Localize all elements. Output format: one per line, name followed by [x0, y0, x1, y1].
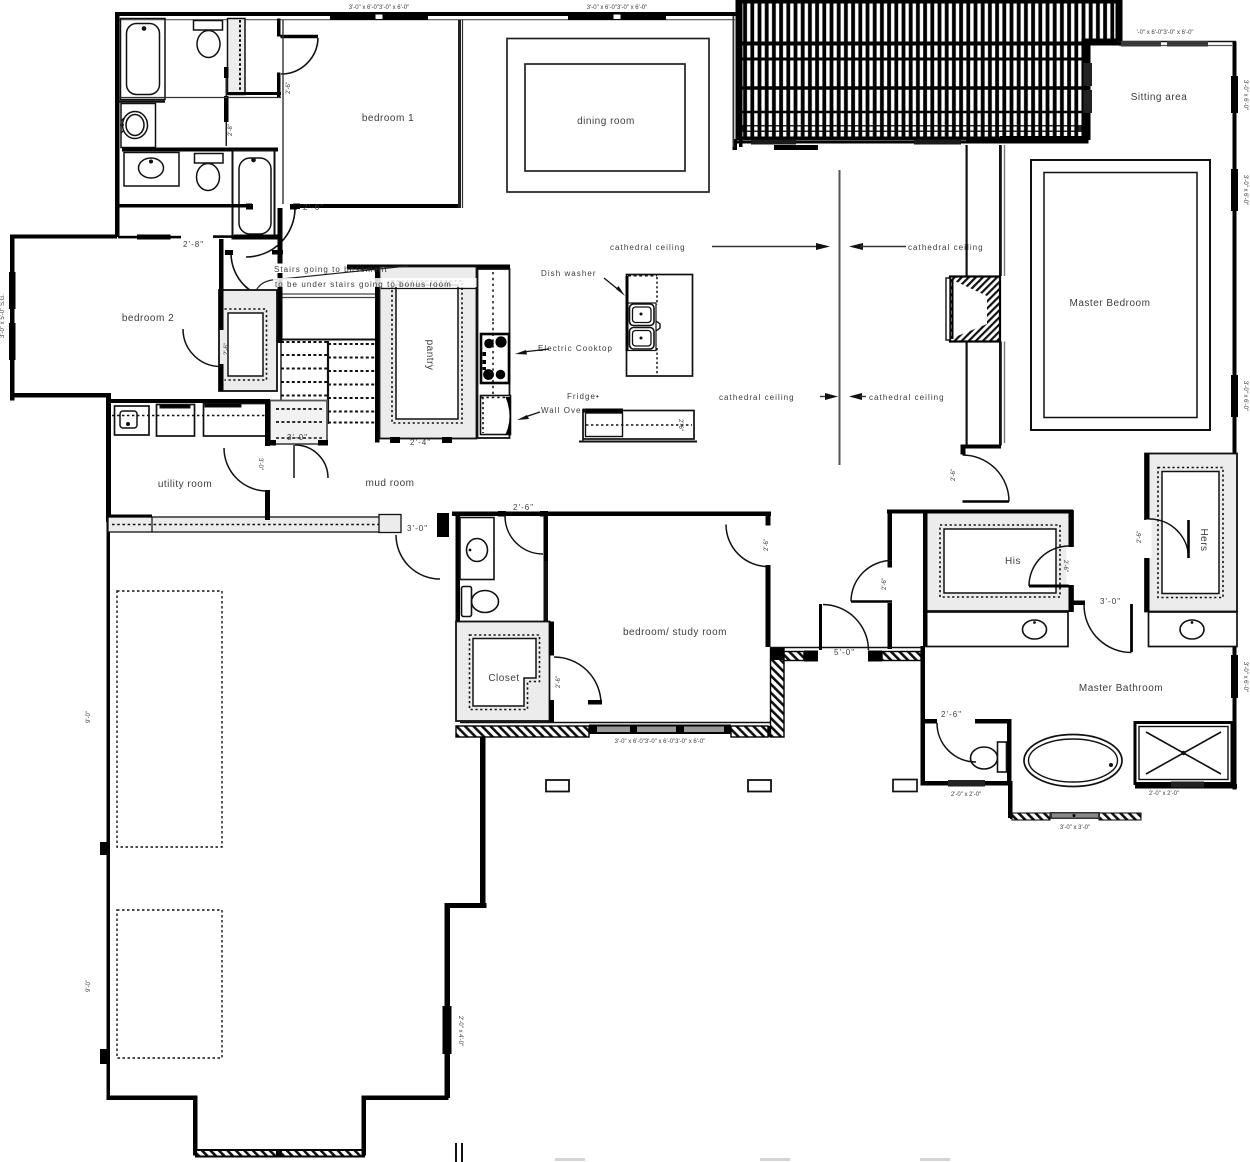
svg-text:3'-0": 3'-0" [257, 458, 263, 470]
svg-text:cathedral ceiling: cathedral ceiling [869, 393, 945, 402]
svg-text:9'-0": 9'-0" [86, 711, 92, 723]
svg-text:2'-6": 2'-6" [303, 203, 324, 212]
svg-text:3'-0" x 6'-0": 3'-0" x 6'-0" [1242, 381, 1248, 411]
svg-text:3'-0" x 5'-0" S.G.: 3'-0" x 5'-0" S.G. [0, 294, 6, 338]
svg-text:2'-4": 2'-4" [410, 438, 431, 447]
svg-text:3'-0" x 6'-0"3'-0" x 6'-0"3'-0: 3'-0" x 6'-0"3'-0" x 6'-0"3'-0" x 6'-0" [615, 739, 706, 745]
svg-text:3'-0" x 6'-0"3'-0" x 6'-0": 3'-0" x 6'-0"3'-0" x 6'-0" [587, 5, 647, 11]
svg-text:bedroom/ study room: bedroom/ study room [623, 627, 727, 638]
svg-text:2'-6": 2'-6" [513, 503, 534, 512]
svg-text:2'-0" x 4'-0": 2'-0" x 4'-0" [457, 1016, 463, 1046]
svg-text:2'-6": 2'-6" [1137, 531, 1143, 543]
svg-text:2'-6": 2'-6" [677, 419, 683, 431]
svg-text:2'-0" x 2'-0": 2'-0" x 2'-0" [951, 792, 981, 798]
svg-text:9'-0": 9'-0" [86, 980, 92, 992]
svg-text:bedroom 2: bedroom 2 [122, 313, 174, 324]
svg-text:2'-6": 2'-6" [224, 343, 230, 355]
svg-text:3'-0" x 6'-0": 3'-0" x 6'-0" [1242, 175, 1248, 205]
svg-text:Wall Oven: Wall Oven [541, 406, 587, 415]
svg-text:'-0" x 6'-0"3'-0" x 6'-0": '-0" x 6'-0"3'-0" x 6'-0" [1136, 30, 1193, 36]
svg-text:cathedral ceiling: cathedral ceiling [610, 243, 686, 252]
svg-text:2'-6": 2'-6" [1062, 560, 1068, 572]
svg-text:pantry: pantry [424, 340, 435, 371]
svg-text:Dish washer: Dish washer [541, 269, 597, 278]
svg-text:Hers: Hers [1198, 528, 1209, 551]
svg-text:2'-0" x 2'-0": 2'-0" x 2'-0" [1149, 791, 1179, 797]
svg-text:3'-0": 3'-0" [287, 433, 308, 442]
svg-text:3'-0": 3'-0" [1100, 597, 1121, 606]
svg-text:2'-6": 2'-6" [764, 539, 770, 551]
svg-text:3'-0" x 6'-0": 3'-0" x 6'-0" [1242, 662, 1248, 692]
svg-text:2'-6": 2'-6" [882, 578, 888, 590]
svg-text:Sitting area: Sitting area [1131, 92, 1188, 103]
svg-text:Closet: Closet [488, 673, 519, 684]
svg-text:to be under stairs going to bo: to be under stairs going to bonus room [275, 280, 452, 289]
svg-text:2'-8": 2'-8" [183, 240, 204, 249]
svg-text:5'-0": 5'-0" [834, 648, 855, 657]
svg-text:2'-6": 2'-6" [941, 710, 962, 719]
svg-text:3'-0" x 6'-0"3'-0" x 6'-0": 3'-0" x 6'-0"3'-0" x 6'-0" [349, 5, 409, 11]
svg-text:2'-6": 2'-6" [556, 676, 562, 688]
svg-text:Master Bedroom: Master Bedroom [1070, 298, 1151, 309]
svg-text:mud room: mud room [365, 478, 414, 489]
svg-text:2'-6": 2'-6" [286, 82, 292, 94]
svg-text:Electric Cooktop: Electric Cooktop [538, 344, 613, 353]
svg-text:His: His [1005, 556, 1021, 567]
svg-text:3'-0" x 3'-0": 3'-0" x 3'-0" [1060, 825, 1090, 831]
svg-text:3'-0" x 6'-0": 3'-0" x 6'-0" [1242, 80, 1248, 110]
svg-text:bedroom 1: bedroom 1 [362, 113, 414, 124]
svg-text:cathedral ceiling: cathedral ceiling [908, 243, 984, 252]
svg-text:3'-0": 3'-0" [407, 524, 428, 533]
svg-text:Master Bathroom: Master Bathroom [1079, 683, 1163, 694]
svg-text:dining room: dining room [577, 116, 635, 127]
svg-text:2'-6": 2'-6" [951, 469, 957, 481]
svg-text:2'-8": 2'-8" [228, 124, 234, 136]
svg-text:utility room: utility room [158, 479, 212, 490]
svg-text:Fridge•: Fridge• [567, 392, 600, 401]
svg-text:cathedral ceiling: cathedral ceiling [719, 393, 795, 402]
